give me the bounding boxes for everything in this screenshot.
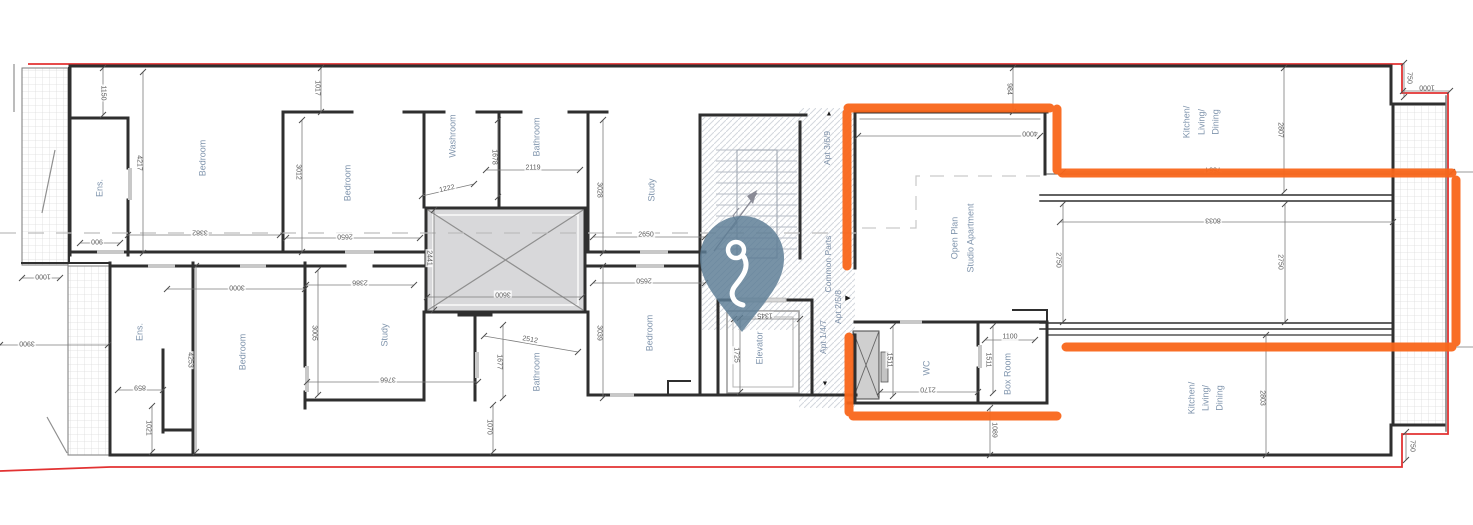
- floor-plan-canvas: Ens.BedroomBedroomWashroomBathroomStudyE…: [0, 0, 1473, 525]
